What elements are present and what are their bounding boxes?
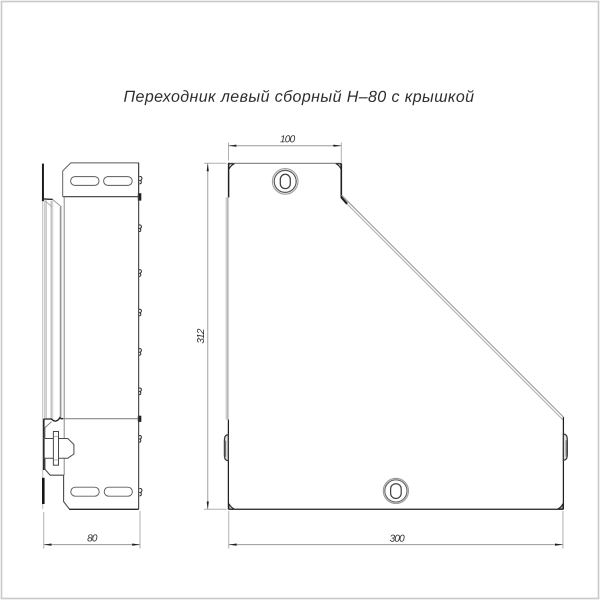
- svg-text:Переходник левый сборный Н–80: Переходник левый сборный Н–80 с крышкой: [124, 89, 475, 106]
- svg-text:80: 80: [87, 533, 98, 544]
- svg-text:100: 100: [280, 134, 296, 145]
- svg-text:300: 300: [390, 534, 406, 545]
- svg-text:312: 312: [196, 328, 207, 344]
